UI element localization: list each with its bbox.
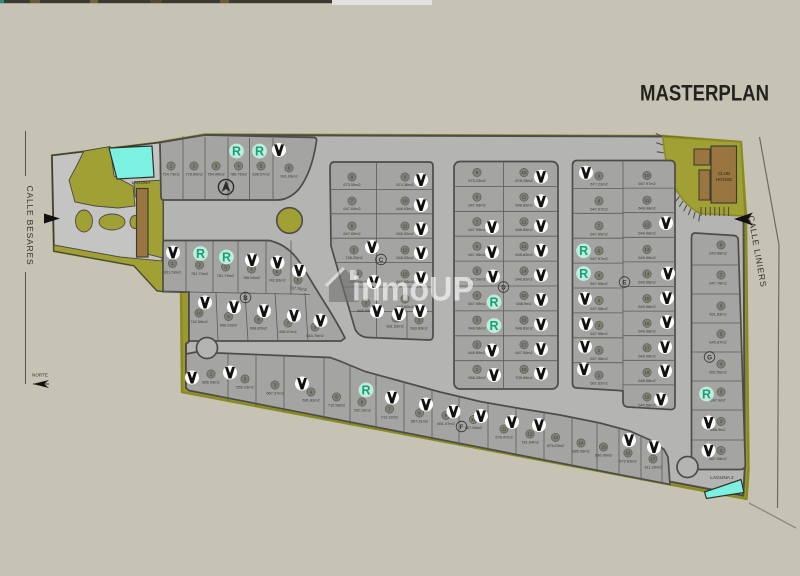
svg-text:675.23m2: 675.23m2 [468,178,485,183]
svg-text:15: 15 [645,296,650,301]
svg-text:742.58m2: 742.58m2 [190,319,207,324]
svg-text:647.98m2: 647.98m2 [590,306,607,311]
svg-text:647.98m2: 647.98m2 [468,252,485,257]
svg-text:667.97m2: 667.97m2 [638,181,655,186]
svg-text:13: 13 [553,435,558,440]
svg-text:656.25m2: 656.25m2 [468,375,485,380]
svg-text:696.96m2: 696.96m2 [595,453,612,458]
svg-text:13: 13 [522,244,527,249]
svg-text:676.47m2: 676.47m2 [495,435,512,440]
svg-text:R: R [255,144,264,158]
svg-text:991.99m2: 991.99m2 [280,174,297,179]
svg-text:19: 19 [645,395,650,400]
svg-text:647.59m2: 647.59m2 [468,227,485,232]
svg-text:R: R [489,319,498,333]
svg-text:698.85m2: 698.85m2 [250,326,267,331]
svg-text:MASTERPLAN: MASTERPLAN [640,81,769,106]
svg-text:712.92m2: 712.92m2 [381,415,398,420]
svg-text:673.63m2: 673.63m2 [547,443,564,448]
svg-text:678.28m2: 678.28m2 [515,178,532,183]
svg-text:11: 11 [403,224,408,229]
svg-text:14: 14 [522,269,527,274]
svg-text:673.59m2: 673.59m2 [343,182,360,187]
svg-text:782.16m2: 782.16m2 [353,408,370,413]
svg-text:754.99m2: 754.99m2 [207,172,224,177]
svg-text:LAGUNA 2: LAGUNA 2 [710,475,734,481]
svg-text:648.58m2: 648.58m2 [638,378,655,383]
svg-text:14: 14 [645,272,650,277]
svg-text:742.69m2: 742.69m2 [268,278,285,283]
svg-text:644.58m2: 644.58m2 [638,403,655,408]
svg-text:NORTE: NORTE [32,373,48,378]
svg-text:611.26m2: 611.26m2 [644,465,661,470]
svg-text:647.54m2: 647.54m2 [515,350,532,355]
svg-text:16: 16 [522,318,527,323]
svg-text:786.56m2: 786.56m2 [243,275,260,280]
svg-text:648.98m2: 648.98m2 [468,326,485,331]
svg-text:647.97m2: 647.97m2 [590,256,607,261]
svg-text:17: 17 [651,457,656,462]
svg-text:648.83m2: 648.83m2 [515,276,532,281]
svg-text:12: 12 [528,432,533,437]
svg-text:649.98m2: 649.98m2 [638,329,655,334]
svg-text:648.83m2: 648.83m2 [515,203,532,208]
svg-text:648.83m2: 648.83m2 [515,326,532,331]
svg-text:13: 13 [645,247,650,252]
svg-text:11: 11 [522,195,527,200]
svg-text:648.30m2: 648.30m2 [396,231,413,236]
svg-text:R: R [196,247,205,261]
svg-text:781.64m2: 781.64m2 [521,440,538,445]
svg-text:659.23m2: 659.23m2 [236,385,253,390]
svg-text:748.25m2: 748.25m2 [345,255,362,260]
svg-text:647.98m2: 647.98m2 [590,331,607,336]
svg-text:786.76m2: 786.76m2 [230,172,247,177]
svg-text:C: C [379,257,384,264]
svg-text:15: 15 [522,293,527,298]
svg-text:667.37m2: 667.37m2 [266,391,283,396]
svg-text:649.98m2: 649.98m2 [638,255,655,260]
svg-text:F: F [460,424,464,431]
svg-text:647.65m2: 647.65m2 [343,231,360,236]
svg-text:667.31m2: 667.31m2 [411,419,428,424]
svg-text:649.98m2: 649.98m2 [638,206,655,211]
svg-text:18: 18 [645,370,650,375]
svg-text:672.63m2: 672.63m2 [619,459,636,464]
svg-text:696.63m2: 696.63m2 [220,323,237,328]
svg-text:649.98m2: 649.98m2 [638,230,655,235]
svg-text:12: 12 [522,219,527,224]
svg-text:10: 10 [197,311,202,316]
svg-text:R: R [579,267,588,281]
svg-text:G: G [707,354,712,361]
svg-text:647.95m2: 647.95m2 [590,281,607,286]
svg-text:685.98m2: 685.98m2 [572,449,589,454]
svg-text:12: 12 [645,222,650,227]
svg-text:648.83m2: 648.83m2 [515,227,532,232]
svg-text:18: 18 [522,367,527,372]
svg-text:781.79m2: 781.79m2 [191,271,208,276]
svg-text:643.58m2: 643.58m2 [709,251,726,256]
svg-text:691.07m2: 691.07m2 [437,421,454,426]
svg-text:647.95m2: 647.95m2 [590,231,607,236]
svg-text:R: R [702,387,711,401]
svg-text:LAGUNA: LAGUNA [132,180,152,185]
svg-text:674.36m2: 674.36m2 [396,182,413,187]
svg-text:648.83m2: 648.83m2 [515,252,532,257]
svg-text:705.98m2: 705.98m2 [515,375,532,380]
svg-text:R: R [489,295,498,309]
svg-text:647.98m2: 647.98m2 [590,356,607,361]
svg-text:10: 10 [645,173,650,178]
svg-text:781.79m2: 781.79m2 [217,273,234,278]
svg-text:10: 10 [403,199,408,204]
svg-text:649.98m2: 649.98m2 [638,304,655,309]
svg-text:651.83m2: 651.83m2 [709,312,726,317]
svg-text:648.93m2: 648.93m2 [396,206,413,211]
svg-text:677.23m2: 677.23m2 [590,182,607,187]
svg-text:R: R [232,144,241,158]
svg-text:643.76m2: 643.76m2 [306,333,323,338]
svg-text:B: B [243,295,248,302]
svg-text:17: 17 [645,345,650,350]
svg-text:11: 11 [645,198,650,203]
svg-text:691.83m2: 691.83m2 [302,398,319,403]
svg-text:667.9m2: 667.9m2 [710,398,725,403]
svg-text:649.98m2: 649.98m2 [638,353,655,358]
svg-text:14: 14 [579,441,584,446]
svg-text:648.93m2: 648.93m2 [396,255,413,260]
svg-text:17: 17 [522,342,527,347]
svg-text:647.64m2: 647.64m2 [343,206,360,211]
svg-text:648.89m2: 648.89m2 [468,350,485,355]
svg-text:698.57m2: 698.57m2 [252,172,269,177]
svg-text:647.97m2: 647.97m2 [590,206,607,211]
svg-text:inmoUP: inmoUP [352,271,474,309]
svg-text:R: R [361,383,370,397]
svg-text:690.07m2: 690.07m2 [279,329,296,334]
svg-text:E: E [622,279,626,286]
svg-text:10: 10 [522,170,527,175]
svg-text:648.9m2: 648.9m2 [516,301,531,306]
svg-text:681.63m2: 681.63m2 [386,324,403,329]
svg-text:652.56m2: 652.56m2 [709,370,726,375]
svg-text:12: 12 [403,248,408,253]
svg-text:D: D [501,284,506,291]
svg-text:11: 11 [502,427,507,432]
svg-text:631.58m2: 631.58m2 [164,270,181,275]
svg-text:15: 15 [601,445,606,450]
svg-text:667.62m2: 667.62m2 [590,381,607,386]
svg-text:16: 16 [645,321,650,326]
svg-text:778.89m2: 778.89m2 [185,172,202,177]
svg-text:754.73m2: 754.73m2 [162,172,179,177]
svg-text:647.78m2: 647.78m2 [709,281,726,286]
svg-text:649.98m2: 649.98m2 [638,280,655,285]
svg-text:645.87m2: 645.87m2 [709,340,726,345]
svg-text:683.83m2: 683.83m2 [410,326,427,331]
svg-text:16: 16 [626,451,631,456]
svg-text:687.56m2: 687.56m2 [465,425,482,430]
svg-text:R: R [222,250,231,264]
svg-text:CLUB: CLUB [718,171,730,176]
svg-text:CALLE BESARES: CALLE BESARES [25,186,35,266]
svg-text:667.58m2: 667.58m2 [709,456,726,461]
svg-text:R: R [579,244,588,258]
svg-text:HOUSE: HOUSE [716,177,732,182]
svg-text:715.58m2: 715.58m2 [328,403,345,408]
svg-text:647.98m2: 647.98m2 [468,203,485,208]
svg-text:806.93m2: 806.93m2 [202,380,219,385]
